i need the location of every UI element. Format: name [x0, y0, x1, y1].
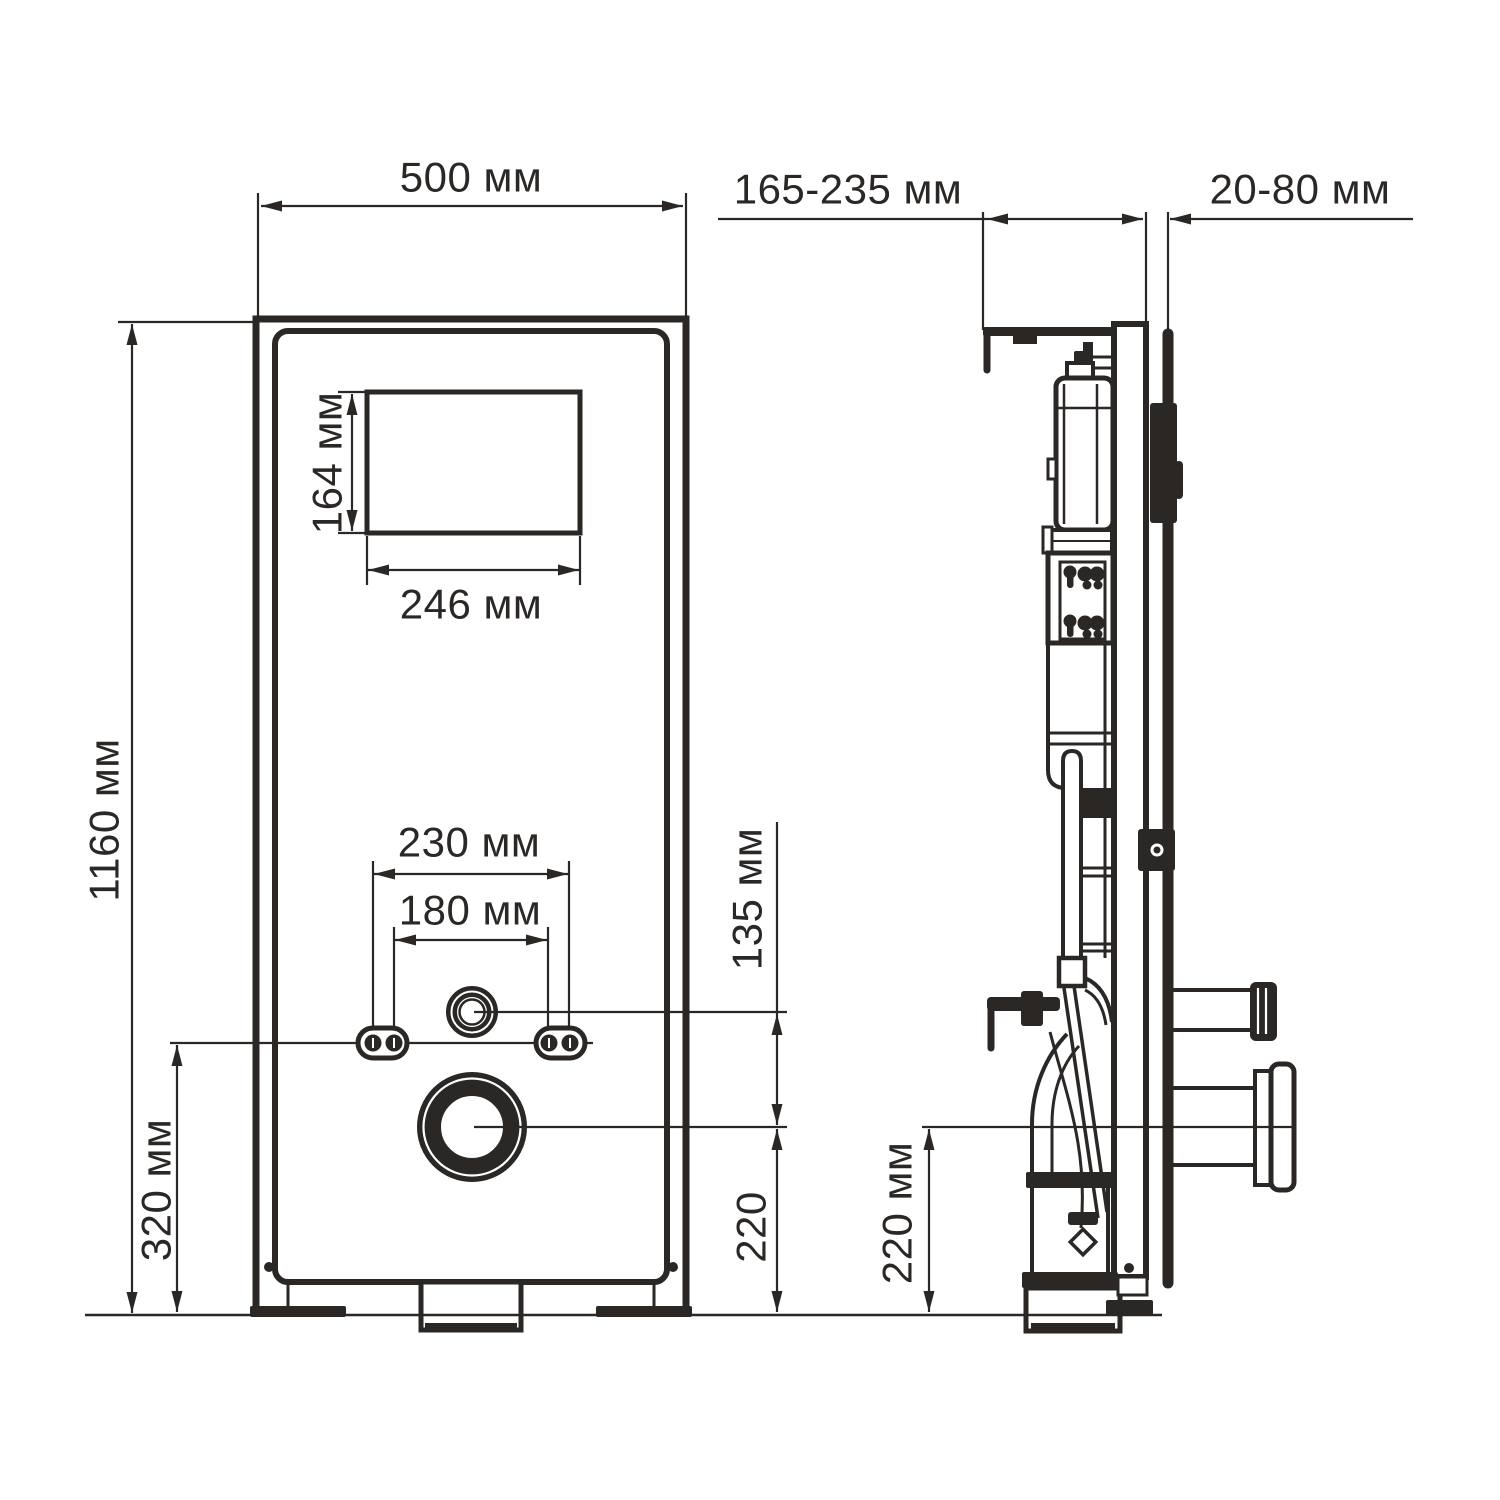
dim-bolt-spacing-outer-label: 230 мм	[398, 819, 541, 866]
keyhole-slots-top	[1064, 566, 1105, 590]
fixing-bolts-right	[536, 1028, 585, 1058]
frame-profile	[1114, 324, 1146, 1277]
dim-frame-height-label: 1160 мм	[81, 738, 128, 901]
drain-elbow	[1022, 1034, 1120, 1331]
fixing-bolts-left	[358, 1028, 407, 1058]
flush-plate-housing	[1150, 403, 1177, 523]
dim-front-width-label: 500 мм	[400, 154, 543, 201]
front-drain-box	[421, 1282, 521, 1330]
dim-bolt-height-label: 320 мм	[133, 1119, 180, 1262]
side-view	[983, 324, 1294, 1331]
dim-outlet-height-front-label: 220	[728, 1191, 775, 1263]
dim-bolt-spacing-inner-label: 180 мм	[399, 887, 542, 934]
dim-opening-height-label: 164 мм	[304, 392, 351, 535]
flush-plate-opening	[367, 392, 580, 533]
keyhole-panel	[1048, 553, 1113, 643]
keyhole-slots-bottom	[1064, 615, 1105, 639]
cistern-tank	[1043, 342, 1114, 553]
water-supply-pipe	[1170, 982, 1277, 1041]
dim-wall-distance-label: 20-80 мм	[1210, 166, 1391, 213]
flush-pipe	[1063, 751, 1081, 962]
dim-outlet-height-side-label: 220 мм	[874, 1142, 921, 1285]
dim-depth-range-label: 165-235 мм	[734, 166, 963, 213]
dim-inlet-offset-label: 135 мм	[724, 828, 771, 971]
technical-drawing-page: 500 мм 165-235 мм 20-80 мм 164 мм 246 мм…	[0, 0, 1500, 1500]
dim-opening-width-label: 246 мм	[400, 581, 543, 628]
installation-frame-drawing: 500 мм 165-235 мм 20-80 мм 164 мм 246 мм…	[0, 0, 1500, 1500]
dimension-lines	[118, 193, 1413, 1313]
inlet-valve-bracket	[987, 991, 1060, 1048]
